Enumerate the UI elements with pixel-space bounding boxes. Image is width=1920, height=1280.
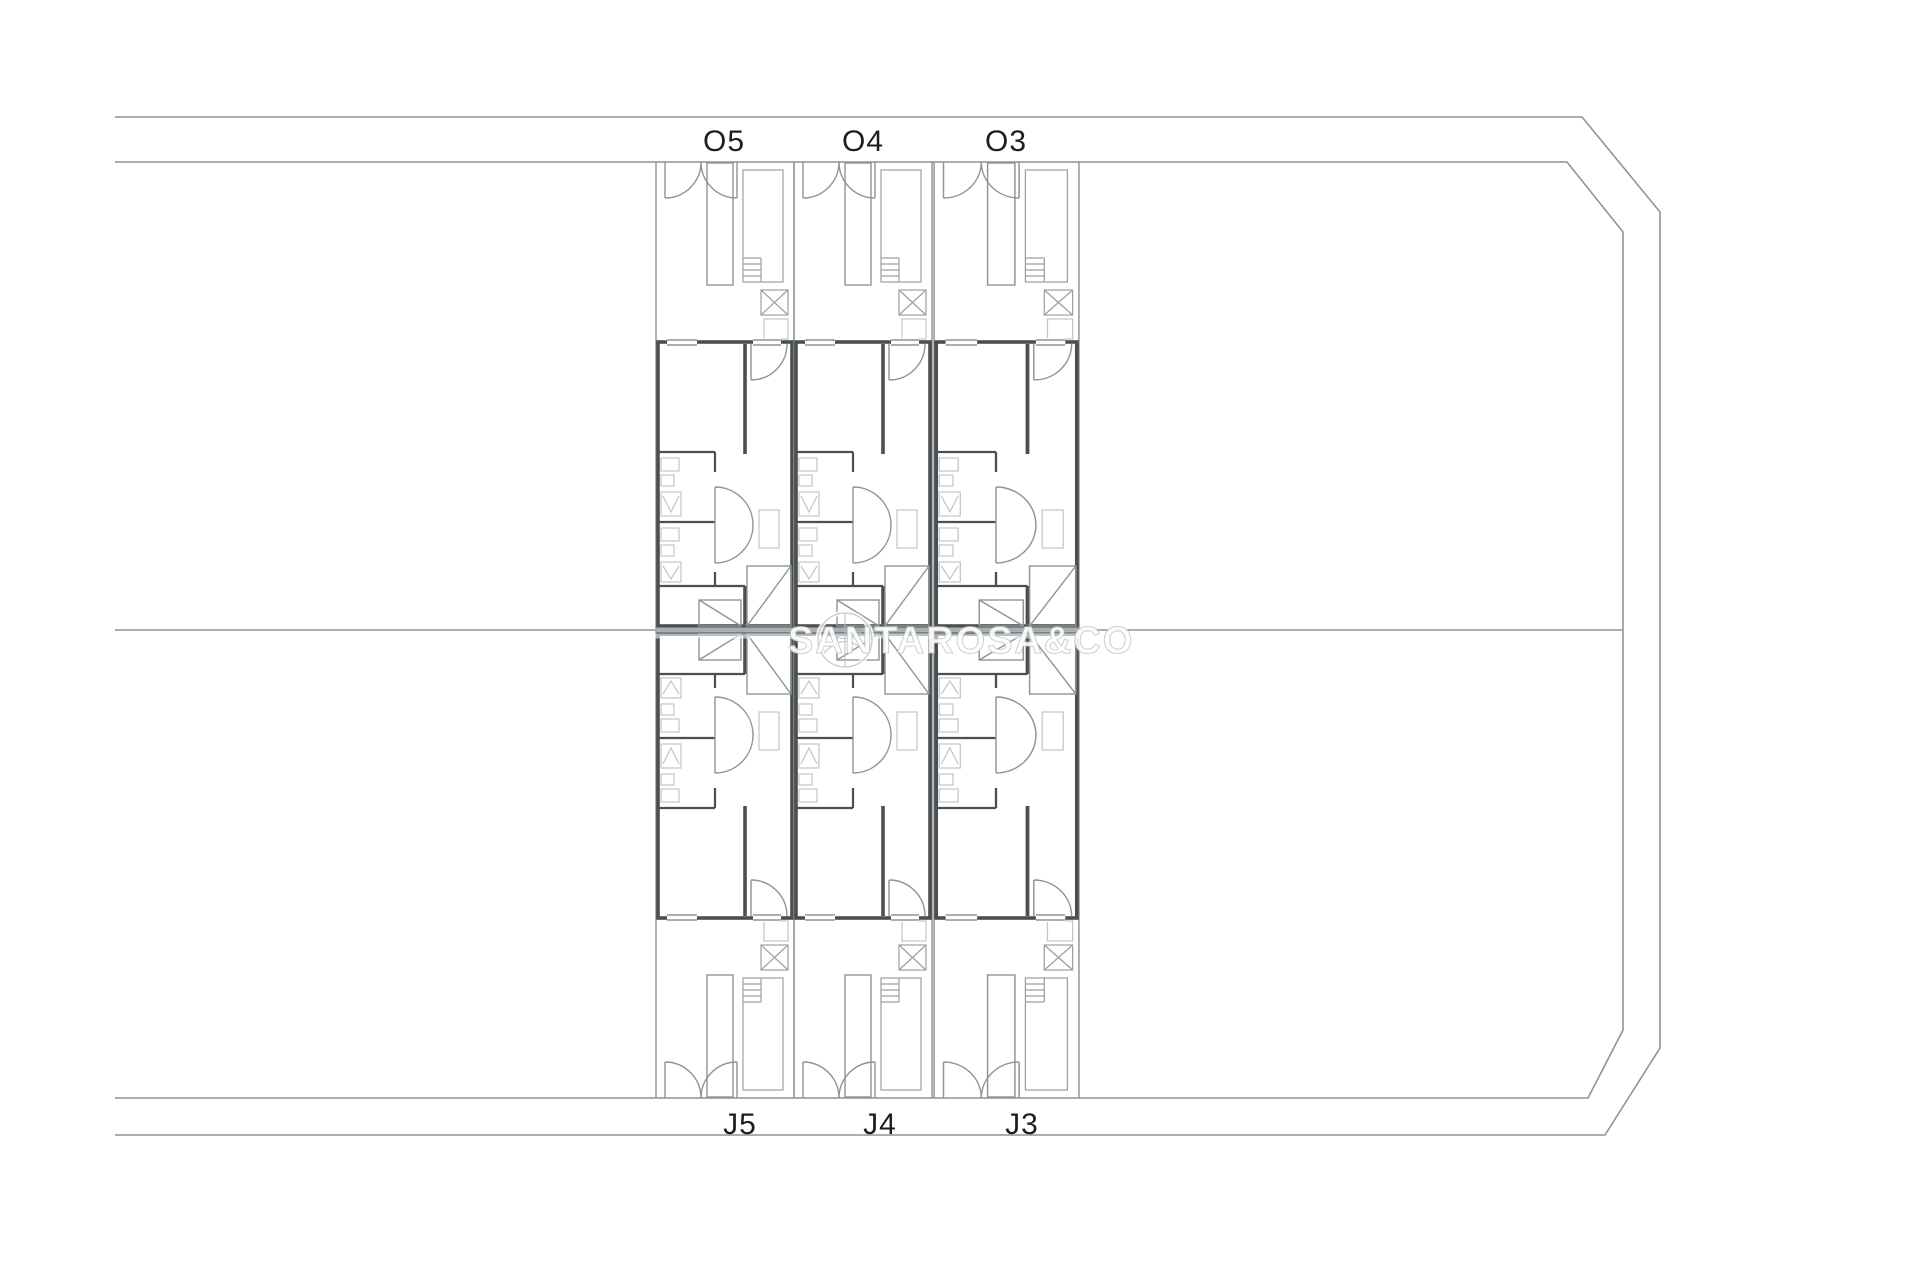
unit-label-O3: O3 xyxy=(985,125,1027,158)
unit-O5 xyxy=(656,162,794,629)
watermark: SANTAROSA&CO xyxy=(560,613,1360,667)
unit-O3 xyxy=(934,162,1079,629)
floor-plan-sheet: O5 O4 O3 J5 J4 J3 SANTAROSA&CO xyxy=(0,0,1920,1280)
unit-J5 xyxy=(656,631,794,1098)
unit-O4 xyxy=(794,162,932,629)
unit-label-J3: J3 xyxy=(1005,1108,1039,1141)
unit-label-O5: O5 xyxy=(703,125,745,158)
unit-label-J5: J5 xyxy=(723,1108,757,1141)
floor-plan-svg: O5 O4 O3 J5 J4 J3 SANTAROSA&CO xyxy=(0,0,1920,1280)
unit-J4 xyxy=(794,631,932,1098)
unit-label-J4: J4 xyxy=(863,1108,897,1141)
watermark-text: SANTAROSA&CO xyxy=(788,620,1134,662)
unit-J3 xyxy=(934,631,1079,1098)
unit-label-O4: O4 xyxy=(842,125,884,158)
